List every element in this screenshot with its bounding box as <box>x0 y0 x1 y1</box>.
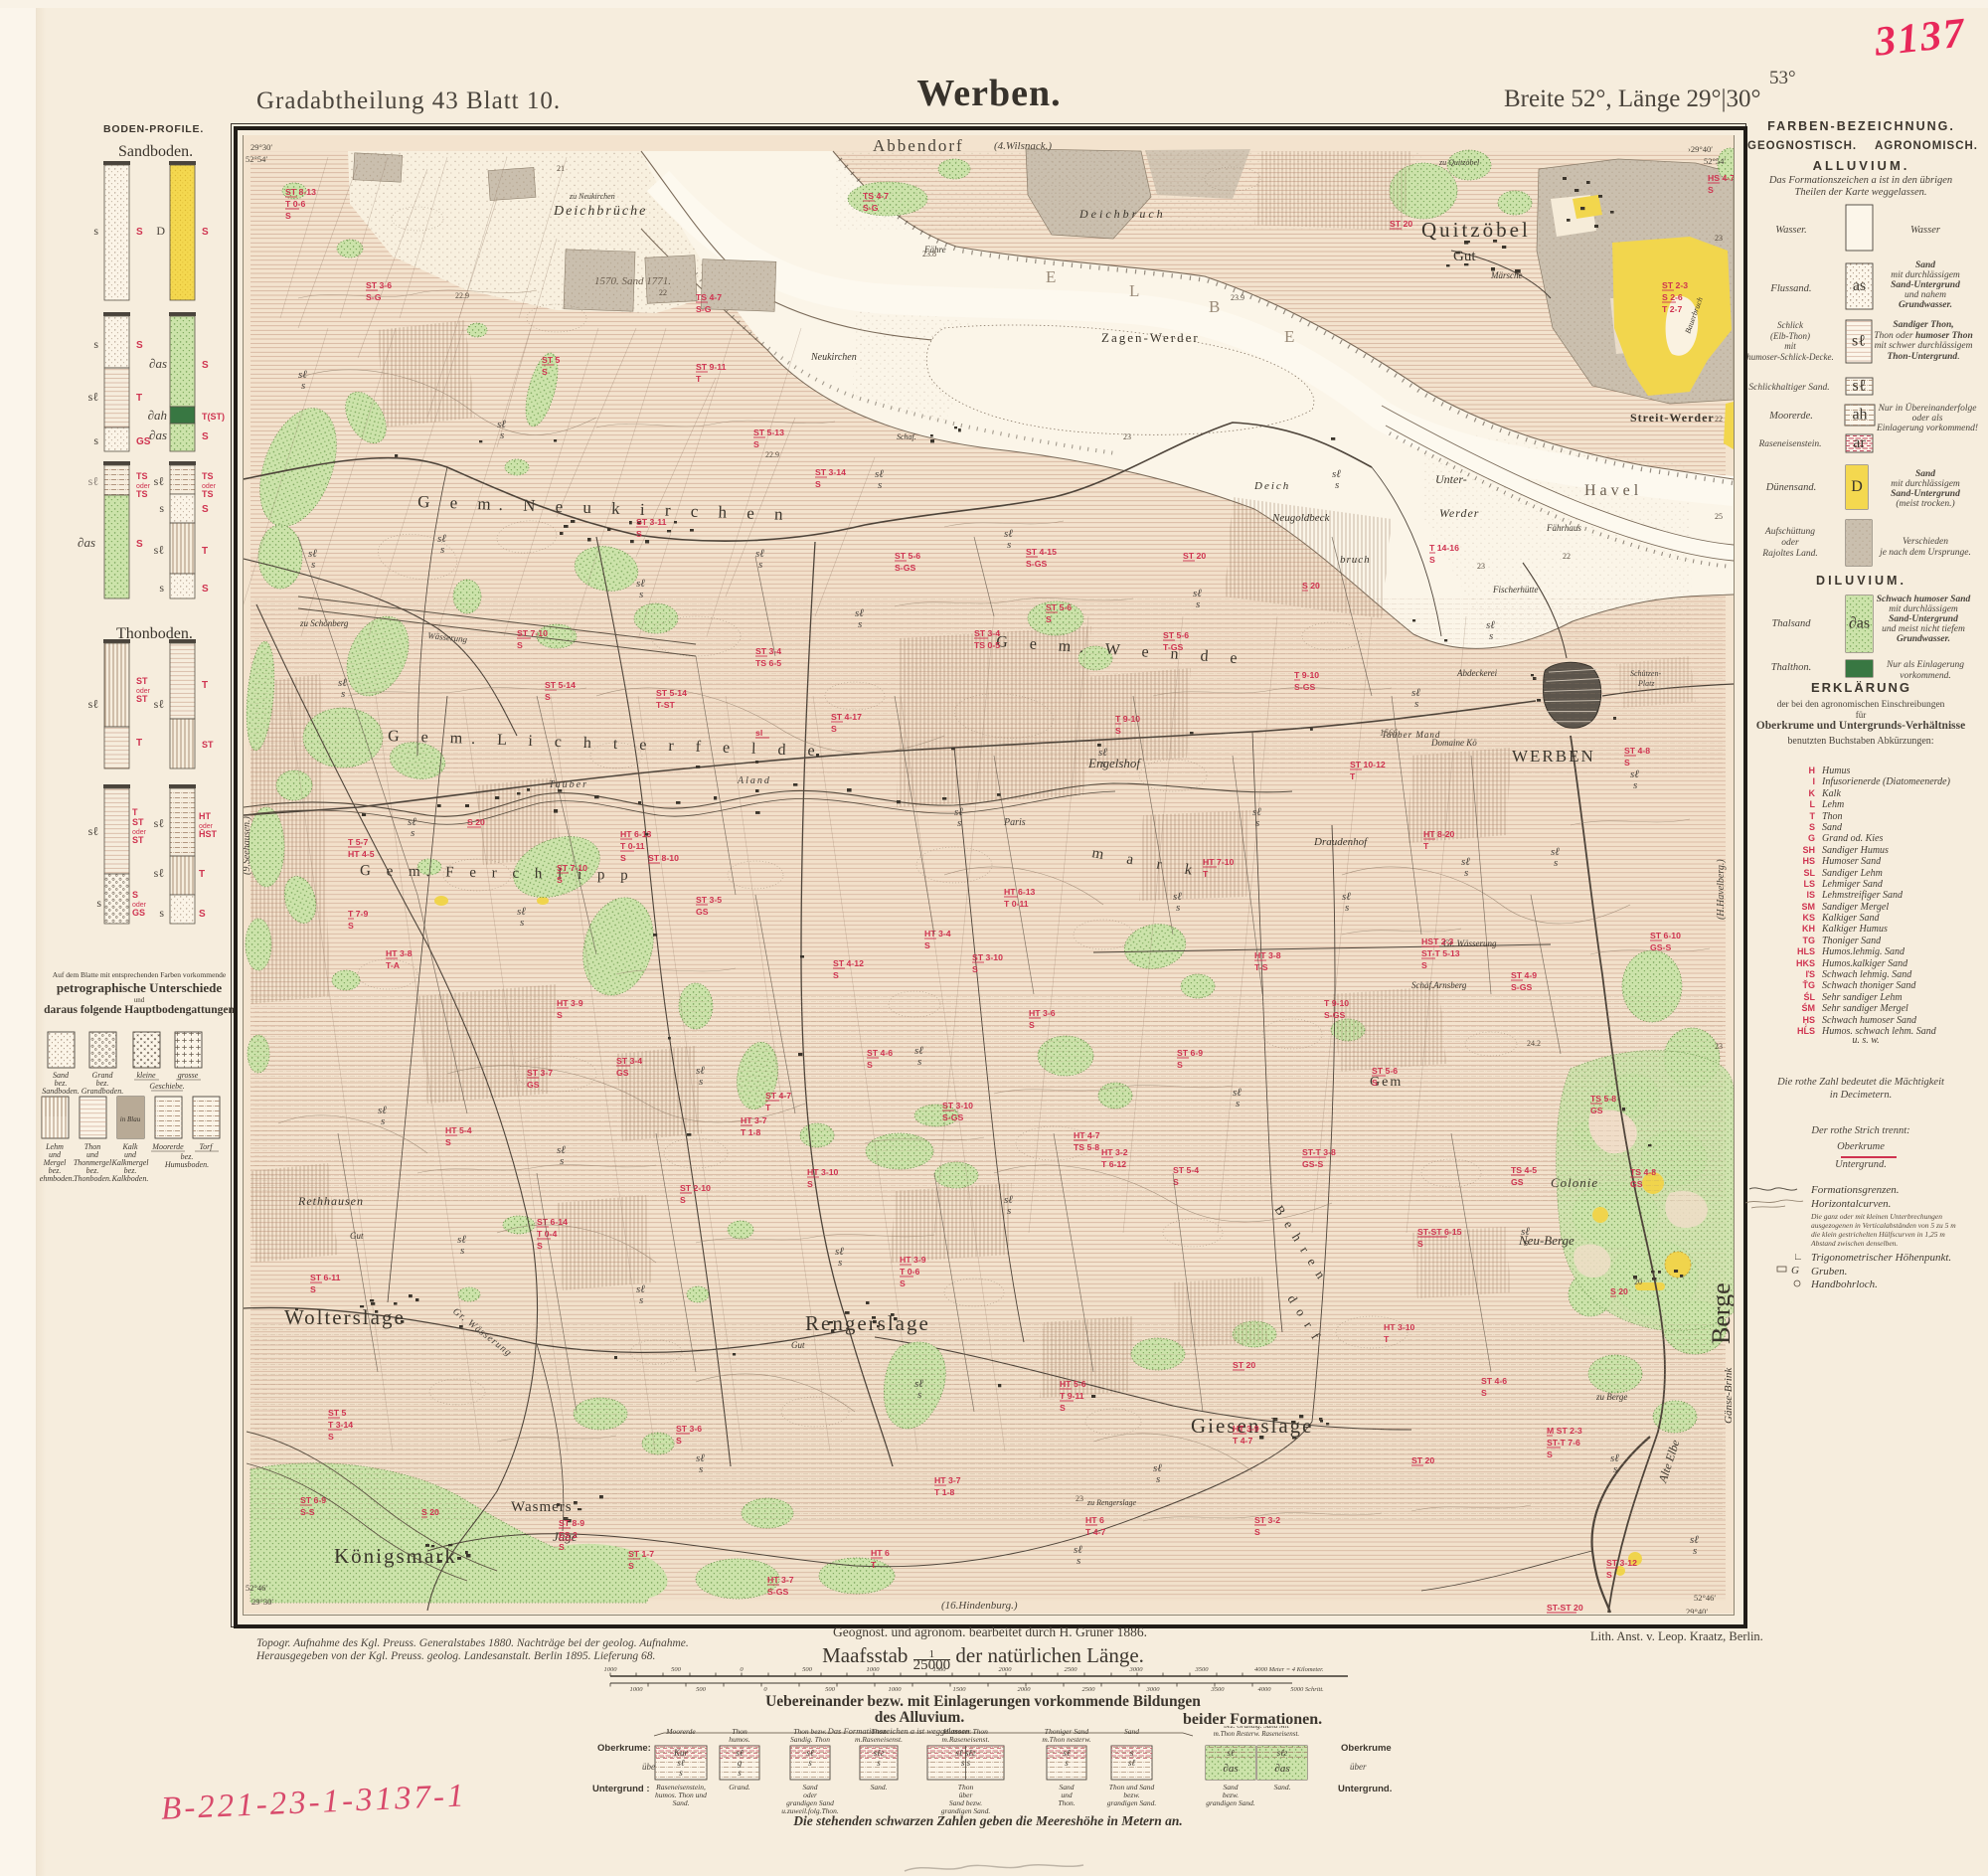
svg-text:as: as <box>1853 277 1866 294</box>
svg-text:sℓ: sℓ <box>88 824 99 838</box>
svg-text:Handbohrloch.: Handbohrloch. <box>1810 1279 1878 1290</box>
svg-text:S: S <box>202 584 209 595</box>
svg-text:m.Raseneisenst.: m.Raseneisenst. <box>942 1735 990 1744</box>
svg-text:T: T <box>132 807 138 817</box>
svg-text:∂as: ∂as <box>149 356 167 371</box>
svg-text:2500: 2500 <box>1082 1686 1096 1692</box>
svg-text:Kur: Kur <box>673 1748 689 1758</box>
svg-text:sℓ: sℓ <box>154 816 165 830</box>
svg-text:ST 3-6: ST 3-6 <box>676 1424 702 1434</box>
svg-text:2000: 2000 <box>999 1666 1013 1673</box>
svg-text:Kalkboden.: Kalkboden. <box>111 1174 149 1183</box>
svg-text:sℓ: sℓ <box>1063 1748 1071 1758</box>
svg-text:∂as: ∂as <box>149 427 167 442</box>
svg-text:T(ST): T(ST) <box>202 412 225 422</box>
svg-text:Sand.: Sand. <box>673 1798 690 1807</box>
svg-text:ST 5-14: ST 5-14 <box>656 688 687 698</box>
svg-text:sℓ: sℓ <box>154 474 165 488</box>
svg-text:HT 7-10: HT 7-10 <box>1203 857 1235 867</box>
svg-text:3000: 3000 <box>1146 1686 1161 1692</box>
svg-text:H̄ST: H̄ST <box>199 829 218 839</box>
svg-text:m.Thon nesterw.: m.Thon nesterw. <box>1042 1735 1090 1744</box>
svg-text:Tauber: Tauber <box>549 779 588 790</box>
svg-text:Gruben.: Gruben. <box>1811 1266 1847 1278</box>
svg-text:5000 Schritt.: 5000 Schritt. <box>1290 1686 1324 1692</box>
svg-text:GS: GS <box>616 1068 629 1078</box>
svg-text:Sandboden.: Sandboden. <box>42 1087 80 1096</box>
svg-text:GS: GS <box>1511 1177 1524 1187</box>
svg-text:TS: TS <box>136 471 148 481</box>
svg-text:g: g <box>738 1758 743 1768</box>
svg-text:500: 500 <box>825 1686 836 1692</box>
svg-text:sℓ: sℓ <box>1128 1758 1136 1768</box>
svg-text:s s: s s <box>961 1758 971 1768</box>
svg-text:Formationsgrenzen.: Formationsgrenzen. <box>1810 1184 1900 1196</box>
svg-text:grosse: grosse <box>178 1071 199 1080</box>
svg-text:sℓг: sℓг <box>874 1748 885 1758</box>
svg-text:S: S <box>136 539 143 550</box>
svg-text:S: S <box>202 360 209 371</box>
svg-text:T 0-11: T 0-11 <box>1004 899 1029 909</box>
svg-text:4000 Meter = 4 Kilometer.: 4000 Meter = 4 Kilometer. <box>1254 1666 1324 1673</box>
svg-text:s: s <box>96 896 101 910</box>
svg-text:D: D <box>1851 478 1863 495</box>
svg-text:500: 500 <box>671 1666 682 1673</box>
svg-text:sℓ sℓг: sℓ sℓг <box>955 1748 976 1758</box>
svg-text:die klein gestrichelten Hülfsc: die klein gestrichelten Hülfscurven in 1… <box>1811 1230 1945 1239</box>
svg-text:S: S <box>132 890 138 900</box>
svg-text:S: S <box>517 640 523 650</box>
svg-text:m.Thon Resterw. Raseneisenst.: m.Thon Resterw. Raseneisenst. <box>1214 1730 1300 1738</box>
svg-text:S: S <box>136 340 143 351</box>
svg-text:sℓ: sℓ <box>88 474 99 488</box>
svg-text:T: T <box>1203 869 1209 879</box>
svg-text:s: s <box>159 501 164 515</box>
svg-text:Humusboden.: Humusboden. <box>164 1160 209 1169</box>
svg-text:HT 3-9: HT 3-9 <box>1233 1424 1259 1434</box>
svg-text:D: D <box>156 224 165 238</box>
svg-text:Grandboden.: Grandboden. <box>82 1087 123 1096</box>
svg-text:Sandig. Thon: Sandig. Thon <box>790 1735 830 1744</box>
svg-text:s: s <box>93 337 98 351</box>
svg-text:TS: TS <box>202 471 214 481</box>
svg-text:ST 4-7: ST 4-7 <box>765 1091 791 1101</box>
svg-text:1500: 1500 <box>953 1686 967 1692</box>
svg-text:s: s <box>877 1758 881 1768</box>
svg-text:ar: ar <box>1853 434 1866 451</box>
svg-text:TS 4-5: TS 4-5 <box>1511 1165 1537 1175</box>
svg-text:1000: 1000 <box>867 1666 881 1673</box>
svg-text:Sand.: Sand. <box>1274 1783 1291 1791</box>
svg-text:S: S <box>202 431 209 442</box>
svg-text:∟: ∟ <box>1793 1252 1803 1263</box>
svg-text:T: T <box>136 738 142 749</box>
svg-text:1000: 1000 <box>889 1686 903 1692</box>
svg-text:T: T <box>765 1103 771 1112</box>
svg-text:s: s <box>1130 1748 1134 1758</box>
svg-text:kleine: kleine <box>136 1071 156 1080</box>
svg-text:ST: ST <box>132 835 144 845</box>
svg-text:T: T <box>202 546 208 557</box>
svg-text:ST 3-4: ST 3-4 <box>974 628 1000 638</box>
svg-text:ST: ST <box>136 694 148 704</box>
svg-text:grandigen Sand.: grandigen Sand. <box>1107 1798 1157 1807</box>
svg-text:Aland: Aland <box>737 775 771 786</box>
svg-text:Lehmboden.: Lehmboden. <box>40 1174 75 1183</box>
svg-text:sℓ: sℓ <box>88 697 99 711</box>
svg-text:ST: ST <box>132 817 144 827</box>
svg-text:T 5-7: T 5-7 <box>348 837 368 847</box>
svg-text:s: s <box>808 1758 812 1768</box>
svg-text:sℓ: sℓ <box>154 697 165 711</box>
svg-text:ST 3-4: ST 3-4 <box>616 1056 642 1066</box>
svg-text:S: S <box>676 1436 682 1446</box>
svg-text:s: s <box>1065 1758 1069 1768</box>
svg-text:Paris: Paris <box>1003 817 1026 828</box>
svg-text:Thonboden.: Thonboden. <box>74 1174 111 1183</box>
svg-text:2500: 2500 <box>1065 1666 1078 1673</box>
svg-text:in Blau: in Blau <box>120 1115 141 1123</box>
svg-text:HT 4-5: HT 4-5 <box>348 849 375 859</box>
svg-text:Horizontalcurven.: Horizontalcurven. <box>1810 1198 1891 1210</box>
svg-text:sl: sl <box>755 728 762 738</box>
svg-text:HT: HT <box>199 811 211 821</box>
svg-text:s: s <box>159 906 164 920</box>
svg-text:500: 500 <box>802 1666 813 1673</box>
svg-text:sℓг: sℓг <box>1277 1748 1288 1758</box>
svg-text:Moorerde: Moorerde <box>151 1142 184 1151</box>
svg-text:s: s <box>159 581 164 595</box>
svg-text:s: s <box>738 1768 742 1778</box>
svg-text:ausgezogenen in Verticalabstän: ausgezogenen in Verticalabständen von 5 … <box>1811 1221 1956 1230</box>
svg-text:sℓ: sℓ <box>1853 378 1867 395</box>
svg-text:ST: ST <box>202 740 214 750</box>
svg-text:∂as: ∂as <box>1223 1763 1238 1775</box>
svg-text:HT 6-13: HT 6-13 <box>1004 887 1036 897</box>
svg-text:T: T <box>136 393 142 404</box>
svg-text:m.Raseneisenst.: m.Raseneisenst. <box>855 1735 903 1744</box>
svg-text:4000: 4000 <box>1258 1686 1272 1692</box>
svg-text:s: s <box>679 1768 683 1778</box>
svg-text:TS 5-8: TS 5-8 <box>1074 1142 1099 1152</box>
svg-text:sℓ: sℓ <box>677 1758 685 1768</box>
svg-text:S: S <box>202 227 209 238</box>
svg-text:s: s <box>93 224 98 238</box>
svg-text:T-ST: T-ST <box>656 700 676 710</box>
svg-text:2000: 2000 <box>1018 1686 1032 1692</box>
svg-text:500: 500 <box>696 1686 707 1692</box>
svg-text:sℓ: sℓ <box>88 390 99 404</box>
svg-text:ST 5-6: ST 5-6 <box>1372 1066 1398 1076</box>
svg-text:3500: 3500 <box>1195 1666 1210 1673</box>
svg-text:Sand: Sand <box>1124 1727 1139 1736</box>
svg-text:S 20: S 20 <box>467 817 485 827</box>
svg-text:0: 0 <box>740 1666 744 1673</box>
svg-text:S: S <box>199 909 206 920</box>
svg-text:sℓ: sℓ <box>1227 1748 1235 1758</box>
svg-text:3500: 3500 <box>1211 1686 1226 1692</box>
svg-text:S: S <box>202 504 209 515</box>
svg-text:ah: ah <box>1852 407 1867 424</box>
svg-text:G: G <box>1791 1265 1799 1277</box>
svg-text:T: T <box>199 869 205 880</box>
svg-text:grandigen Sand.: grandigen Sand. <box>1206 1798 1255 1807</box>
svg-text:TS 0-5: TS 0-5 <box>974 640 1000 650</box>
svg-text:humos.: humos. <box>729 1735 750 1744</box>
svg-text:Geschiebe.: Geschiebe. <box>149 1082 184 1091</box>
svg-text:sℓ: sℓ <box>154 543 165 557</box>
svg-text:Die ganz oder mit kleinen Unte: Die ganz oder mit kleinen Unterbrechunge… <box>1810 1212 1942 1221</box>
svg-text:3000: 3000 <box>1129 1666 1144 1673</box>
svg-text:TS: TS <box>136 489 148 499</box>
svg-text:0: 0 <box>763 1686 767 1692</box>
svg-text:Abstand zwischen denselben.: Abstand zwischen denselben. <box>1810 1239 1898 1248</box>
svg-text:Trigonometrischer Höhenpunkt.: Trigonometrischer Höhenpunkt. <box>1811 1252 1951 1264</box>
svg-text:∂ah: ∂ah <box>148 408 167 423</box>
svg-text:T: T <box>202 680 208 691</box>
svg-text:sℓ: sℓ <box>806 1748 814 1758</box>
svg-text:GS: GS <box>132 908 145 918</box>
svg-text:Moorerde: Moorerde <box>665 1727 696 1736</box>
svg-text:Thon.: Thon. <box>1058 1798 1075 1807</box>
svg-text:TS: TS <box>202 489 214 499</box>
svg-text:Grand.: Grand. <box>729 1783 750 1791</box>
svg-text:sℓ: sℓ <box>154 866 165 880</box>
svg-text:s: s <box>93 433 98 447</box>
svg-text:T 4-7: T 4-7 <box>1233 1436 1252 1446</box>
svg-text:sℓ: sℓ <box>736 1748 744 1758</box>
svg-text:HT 4-7: HT 4-7 <box>1074 1130 1100 1140</box>
svg-text:S: S <box>136 227 143 238</box>
svg-text:∂as: ∂as <box>1274 1763 1289 1775</box>
svg-text:1000: 1000 <box>604 1666 618 1673</box>
svg-text:Sand.: Sand. <box>871 1783 888 1791</box>
svg-text:Torf: Torf <box>199 1142 214 1151</box>
svg-text:1000: 1000 <box>630 1686 644 1692</box>
svg-text:ST: ST <box>136 676 148 686</box>
svg-text:S: S <box>1372 1078 1378 1088</box>
svg-text:1500: 1500 <box>933 1666 947 1673</box>
svg-text:∂as: ∂as <box>78 535 95 550</box>
svg-text:ST 7-10: ST 7-10 <box>517 628 548 638</box>
